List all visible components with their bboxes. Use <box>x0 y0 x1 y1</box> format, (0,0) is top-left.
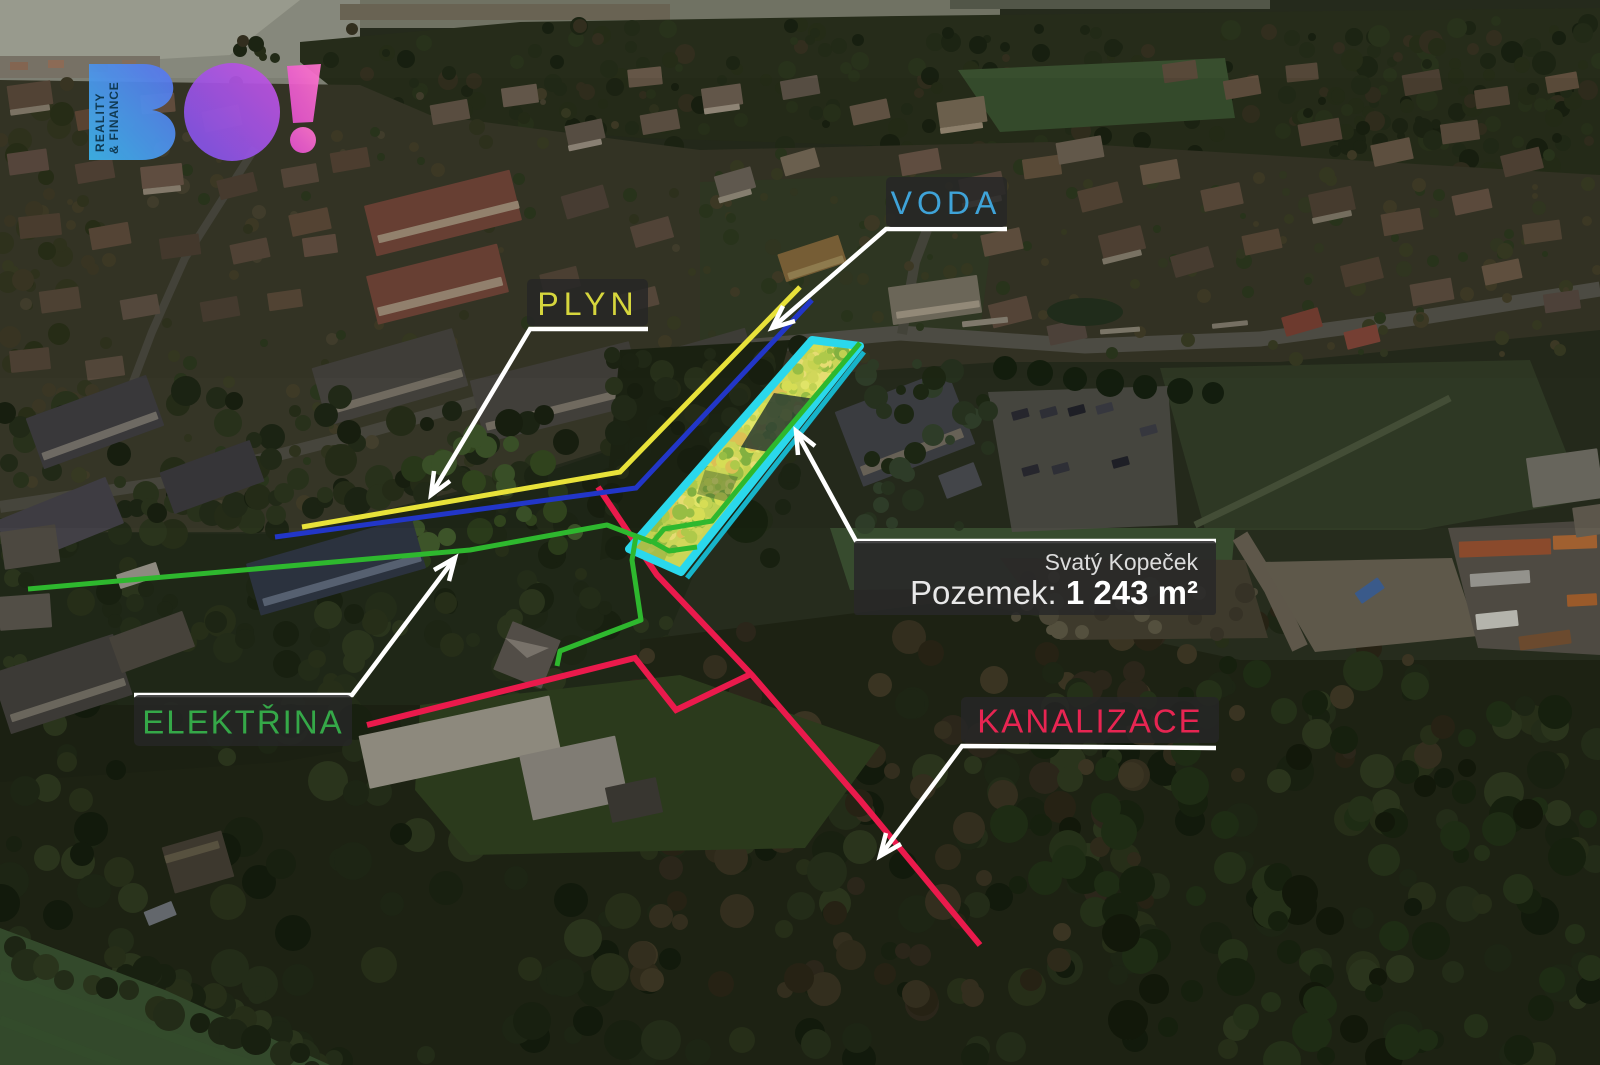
svg-text:KANALIZACE: KANALIZACE <box>977 703 1202 740</box>
svg-text:Pozemek: 1 243 m²: Pozemek: 1 243 m² <box>910 574 1198 611</box>
svg-text:ELEKTŘINA: ELEKTŘINA <box>142 704 343 741</box>
svg-text:VODA: VODA <box>891 185 1002 221</box>
svg-text:PLYN: PLYN <box>537 286 638 322</box>
svg-text:REALITY: REALITY <box>93 92 107 152</box>
svg-text:Svatý Kopeček: Svatý Kopeček <box>1045 549 1199 575</box>
svg-text:& FINANCE: & FINANCE <box>107 81 121 154</box>
